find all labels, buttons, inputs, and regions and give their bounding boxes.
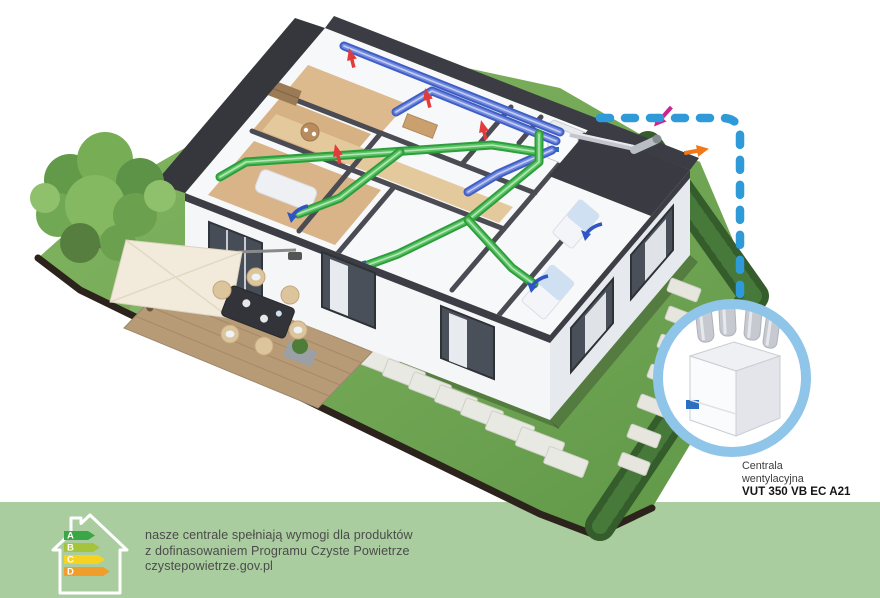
supply-arrow-icon xyxy=(581,224,602,241)
ventilation-unit-indoor xyxy=(548,120,584,170)
supply-ducts-green xyxy=(220,134,539,284)
tree-canopy xyxy=(30,132,176,263)
entrance-glass-door xyxy=(209,222,262,310)
callout-circle xyxy=(658,286,806,452)
patio-table xyxy=(221,285,296,339)
supply-air-arrows xyxy=(287,206,602,293)
callout-label-line2: wentylacyjna xyxy=(742,473,850,486)
exhaust-air-arrow-icon xyxy=(683,143,710,159)
garden-lawn xyxy=(38,60,766,535)
unit-top-face xyxy=(690,342,780,371)
callout-model-number: VUT 350 VB EC A21 xyxy=(742,486,850,499)
garden-hedge xyxy=(600,146,754,526)
grade-letter-b: B xyxy=(67,543,74,554)
intake-air-arrow-icon xyxy=(650,103,676,130)
banner-line-1: nasze centrale spełniają wymogi dla prod… xyxy=(145,528,413,544)
extract-arrow-icon xyxy=(476,119,491,141)
stepping-stones-side xyxy=(617,278,701,476)
callout-label: Centrala wentylacyjna VUT 350 VB EC A21 xyxy=(742,460,850,499)
interior-walls xyxy=(252,95,584,315)
energy-grade-bars: A B C D xyxy=(64,531,110,578)
wall-shadow xyxy=(185,255,698,429)
house-cutaway xyxy=(155,16,710,420)
footer-banner: A B C D nasze centrale spełniają wymogi … xyxy=(0,502,880,598)
kitchen-furniture xyxy=(262,78,437,141)
ventilation-unit-product xyxy=(686,286,782,436)
deck-planter xyxy=(283,338,317,367)
extract-ducts-blue xyxy=(344,46,560,192)
facade-right xyxy=(550,170,690,420)
interior-floor xyxy=(185,28,690,335)
banner-website-link[interactable]: czystepowietrze.gov.pl xyxy=(145,559,413,575)
bed xyxy=(521,264,575,320)
callout-label-line1: Centrala xyxy=(742,460,850,473)
facade-window xyxy=(322,252,375,328)
mown-grass-stripes xyxy=(94,236,296,414)
patio-chairs xyxy=(213,268,307,355)
facade-window xyxy=(631,206,673,299)
facade-window xyxy=(441,306,494,379)
extract-arrow-icon xyxy=(344,47,359,69)
stepping-stones-front xyxy=(330,332,589,477)
terrace-deck xyxy=(124,272,372,408)
energy-house-outline xyxy=(53,515,127,593)
connector-dashed-line xyxy=(600,118,740,294)
grade-letter-c: C xyxy=(67,555,74,566)
extract-arrow-icon xyxy=(420,87,435,109)
deck-planks xyxy=(135,283,362,396)
bed xyxy=(552,199,600,249)
banner-line-2: z dofinasowaniem Programu Czyste Powietr… xyxy=(145,544,413,560)
wood-floors xyxy=(208,65,513,245)
supply-arrow-icon xyxy=(345,262,366,279)
wall-cut-band-left xyxy=(185,193,550,343)
grade-letter-d: D xyxy=(67,567,74,578)
roof-slabs xyxy=(155,16,699,216)
unit-brand-label xyxy=(686,400,699,409)
sofa xyxy=(254,168,319,212)
unit-front-face xyxy=(690,356,736,436)
wall-cut-band-right xyxy=(550,170,690,343)
facade-left xyxy=(185,193,550,420)
lawn-flowers xyxy=(94,297,302,420)
grade-letter-a: A xyxy=(67,531,74,542)
parasol xyxy=(110,240,302,318)
supply-arrow-icon xyxy=(287,206,308,223)
soil-edge xyxy=(38,258,652,535)
extract-air-arrows xyxy=(330,47,491,165)
unit-side-face xyxy=(736,356,780,436)
facade-window xyxy=(571,279,613,372)
extract-arrow-icon xyxy=(330,143,345,165)
interior-furniture xyxy=(254,78,600,320)
garden-tree xyxy=(30,132,176,308)
energy-label-icon: A B C D xyxy=(44,505,136,597)
promo-illustration: A B C D nasze centrale spełniają wymogi … xyxy=(0,0,880,598)
callout-ring xyxy=(658,304,806,452)
supply-arrow-icon xyxy=(527,276,548,293)
unit-duct-spigots xyxy=(693,286,782,349)
wall-vent-pipe xyxy=(570,132,662,150)
